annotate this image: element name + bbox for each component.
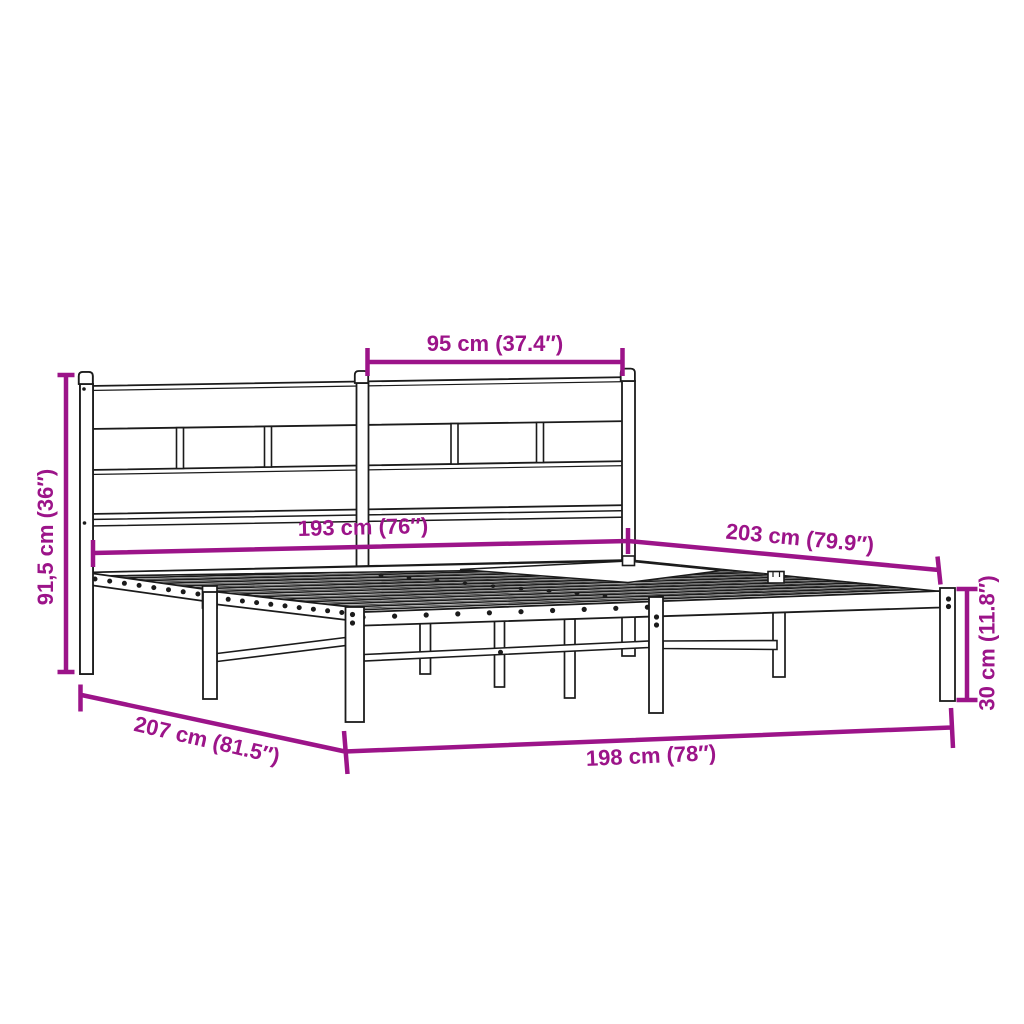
svg-text:91,5 cm (36″): 91,5 cm (36″) [33, 469, 58, 606]
svg-text:198 cm (78″): 198 cm (78″) [585, 740, 716, 771]
svg-text:95 cm (37.4″): 95 cm (37.4″) [427, 331, 564, 356]
svg-text:30 cm (11.8″): 30 cm (11.8″) [975, 575, 1000, 710]
svg-text:193 cm (76″): 193 cm (76″) [298, 513, 429, 541]
